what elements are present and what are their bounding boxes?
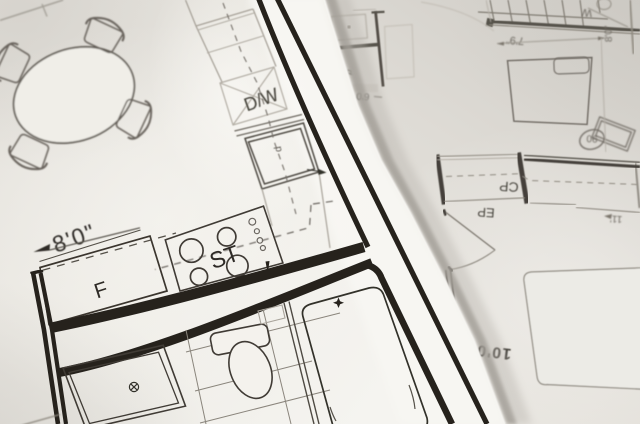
svg-text:CP: CP [499, 178, 520, 195]
svg-text:W: W [581, 6, 593, 19]
svg-text:8'0": 8'0" [603, 25, 615, 42]
svg-text:EP: EP [477, 204, 495, 220]
svg-text:7'9": 7'9" [505, 33, 524, 46]
